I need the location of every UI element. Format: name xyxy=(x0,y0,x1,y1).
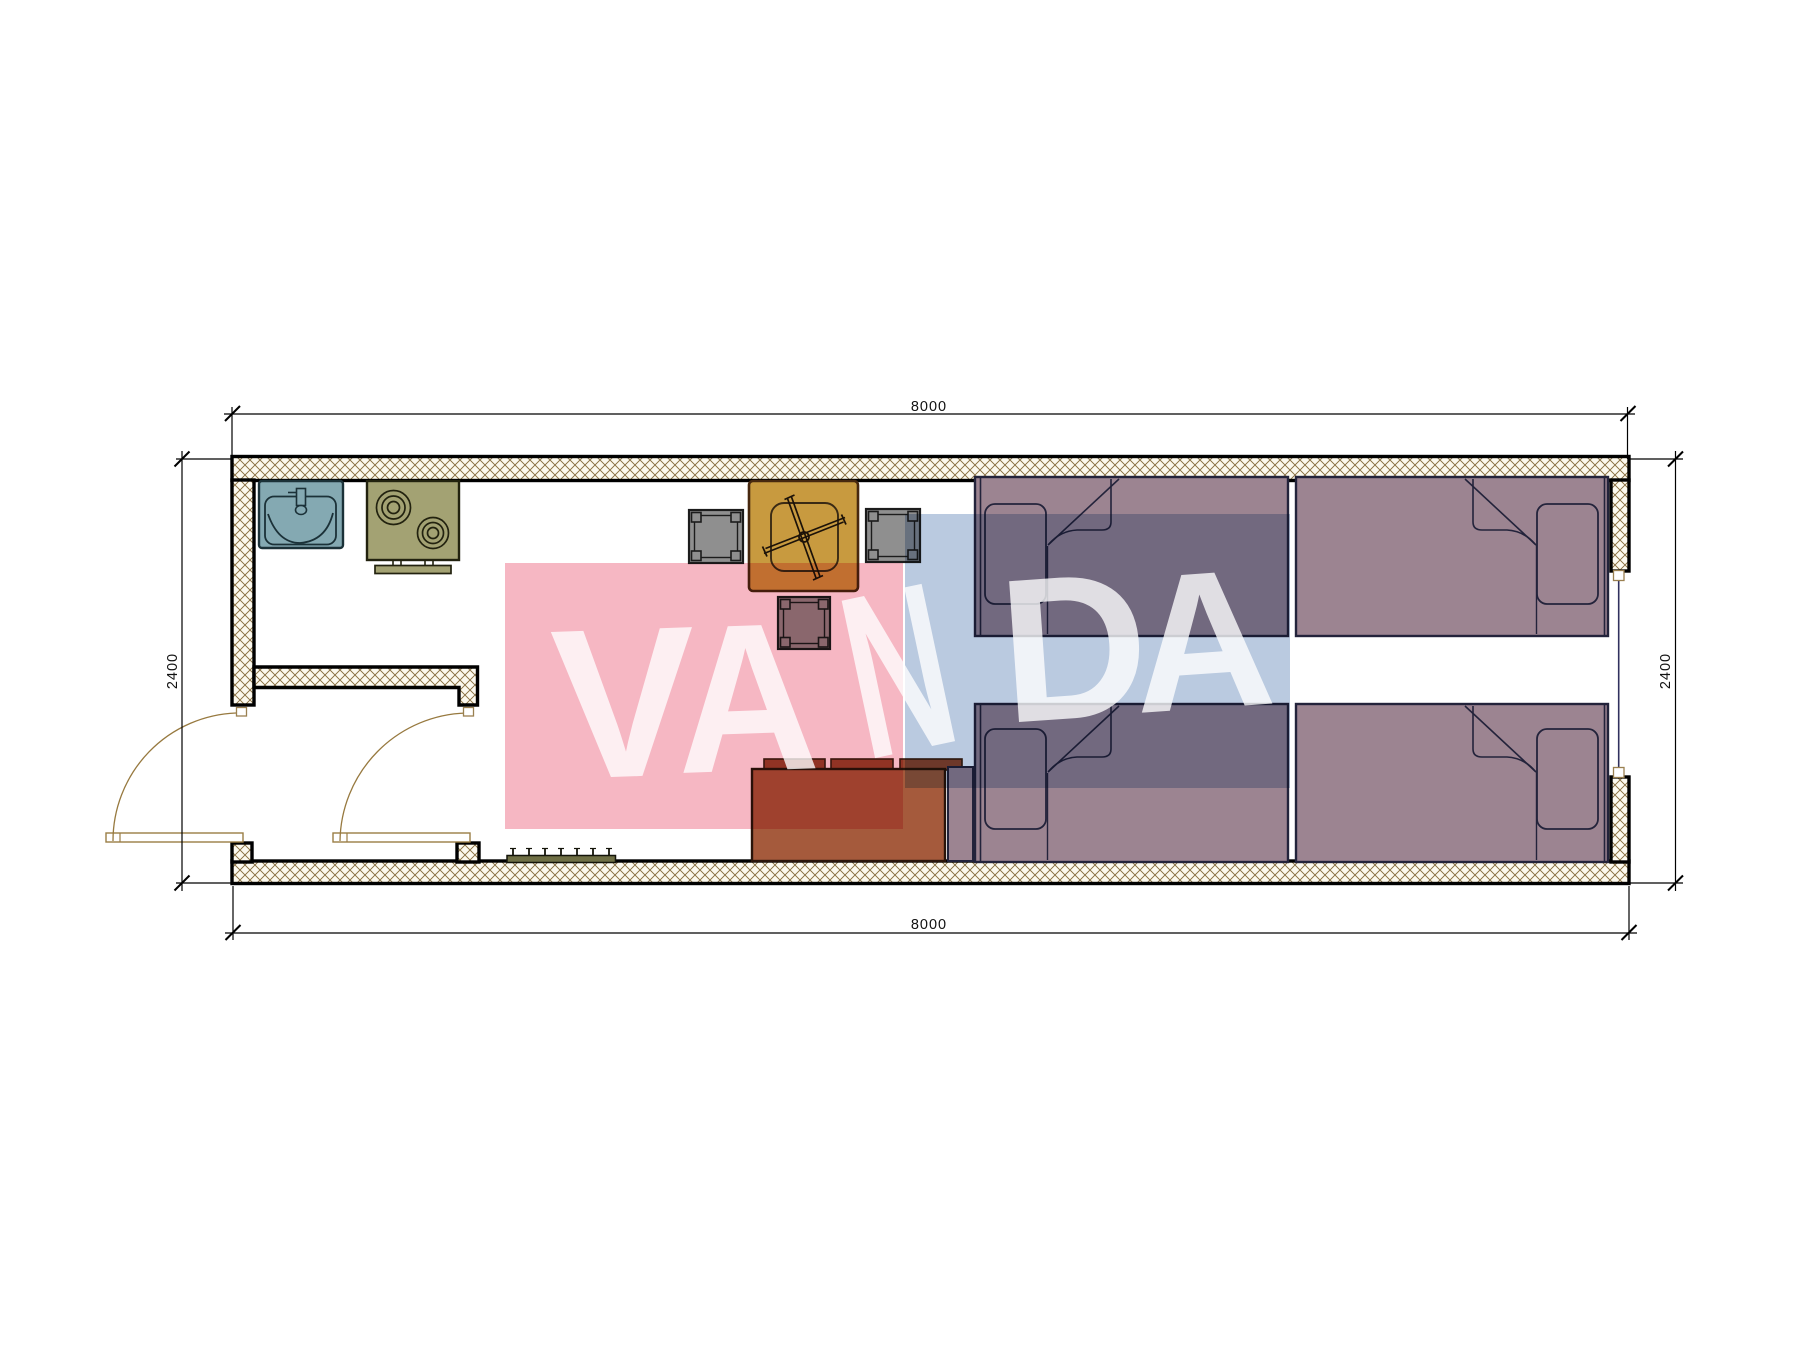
svg-text:8000: 8000 xyxy=(911,399,947,415)
svg-text:8000: 8000 xyxy=(911,917,947,933)
svg-text:A: A xyxy=(1125,527,1281,755)
svg-text:A: A xyxy=(672,578,822,818)
svg-text:2400: 2400 xyxy=(1658,653,1674,689)
svg-text:2400: 2400 xyxy=(165,653,181,689)
